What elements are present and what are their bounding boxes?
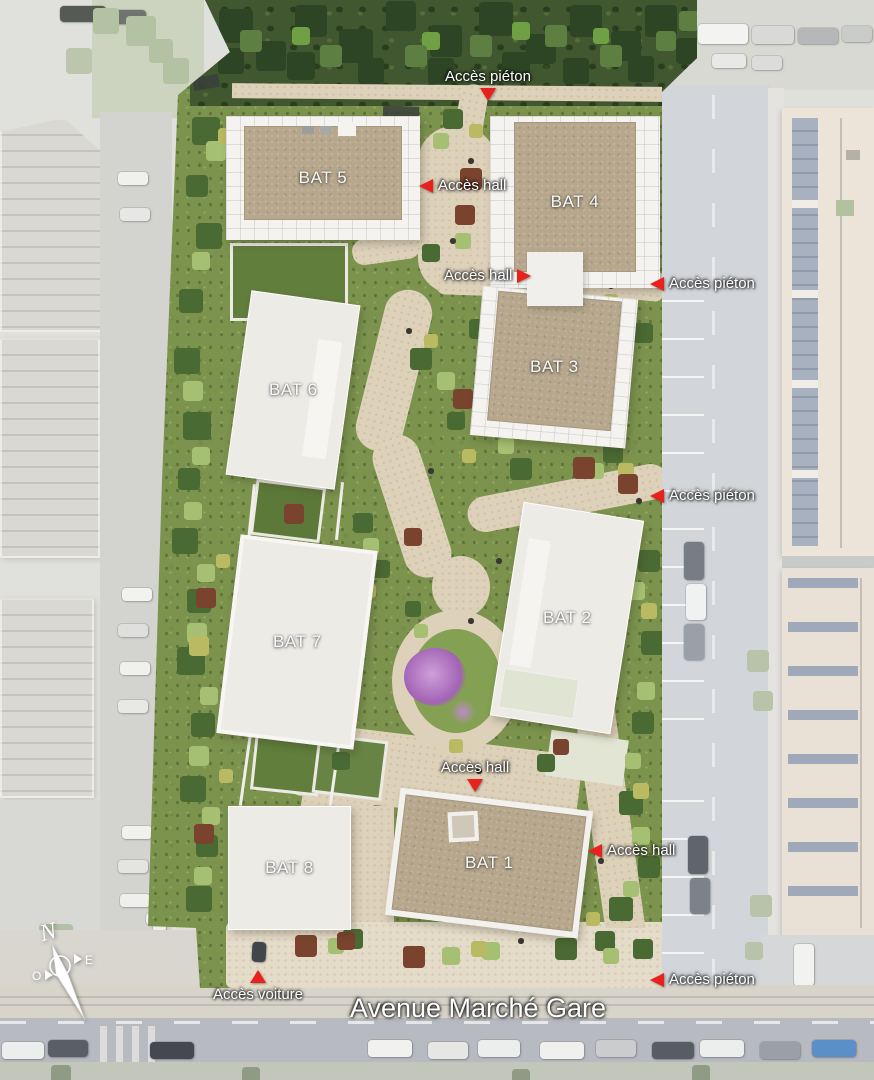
building-bat-8[interactable]: BAT 8 xyxy=(228,806,351,930)
parked-van xyxy=(794,944,814,986)
access-marker-pieton-sud-est: Accès piéton xyxy=(650,971,755,988)
building-label: BAT 7 xyxy=(221,539,373,745)
roof-detail xyxy=(338,122,356,136)
arrow-down-icon xyxy=(467,779,483,792)
compass-east-tick xyxy=(74,954,82,964)
roof xyxy=(514,122,636,272)
roof-line xyxy=(860,578,862,928)
parked-car xyxy=(118,700,148,713)
parked-car xyxy=(690,878,710,914)
compass-north-arrow: N E O xyxy=(12,916,112,1036)
parked-car xyxy=(118,624,148,637)
building-label: BAT 8 xyxy=(229,807,350,929)
parked-car xyxy=(122,588,152,601)
access-label: Accès hall xyxy=(441,759,509,776)
access-label: Accès piéton xyxy=(445,68,531,85)
verge-bottom xyxy=(0,1062,874,1080)
site-plan: BAT 5 BAT 4 BAT 3 BAT 6 BAT 7 BAT 2 BAT … xyxy=(0,0,874,1080)
parked-car xyxy=(48,1040,88,1057)
building-bat-3[interactable]: BAT 3 xyxy=(470,285,638,448)
access-label: Accès piéton xyxy=(669,971,755,988)
parked-car xyxy=(684,624,704,660)
courtyard-green xyxy=(253,482,323,539)
parked-car xyxy=(150,1042,194,1059)
arrow-left-icon xyxy=(650,489,664,503)
arrow-down-icon xyxy=(480,88,496,101)
arrow-left-icon xyxy=(650,277,664,291)
compass-north-label: N xyxy=(36,917,61,947)
access-label: Accès piéton xyxy=(669,487,755,504)
parked-car xyxy=(688,836,708,874)
access-label: Accès hall xyxy=(438,177,506,194)
parked-car xyxy=(760,1042,800,1059)
access-marker-hall-bat4: Accès hall xyxy=(419,177,506,194)
solar-panels xyxy=(788,578,858,928)
parked-car xyxy=(540,1042,584,1059)
parked-truck xyxy=(112,10,146,24)
parked-car xyxy=(652,1042,694,1059)
warehouse-roof xyxy=(0,118,106,332)
parked-car xyxy=(798,28,838,44)
access-marker-hall-bat1-est: Accès hall xyxy=(588,842,675,859)
parked-car xyxy=(752,56,782,70)
access-marker-hall-central: Accès hall xyxy=(444,267,531,284)
warehouse-roof xyxy=(0,338,100,558)
access-label: Accès hall xyxy=(444,267,512,284)
footpath xyxy=(432,556,490,618)
access-marker-voiture: Accès voiture xyxy=(202,970,314,1003)
flowering-tree-purple xyxy=(404,648,466,706)
roof-detail xyxy=(320,126,332,134)
vegetation-scatter xyxy=(0,0,2,2)
compass-needle xyxy=(52,944,85,1020)
parked-car xyxy=(118,172,148,185)
access-label: Accès piéton xyxy=(669,275,755,292)
arrow-right-icon xyxy=(517,269,531,283)
roof-detail xyxy=(509,538,551,668)
parked-car xyxy=(428,1042,468,1059)
parked-car xyxy=(120,208,150,221)
parked-van xyxy=(752,26,794,44)
parked-car xyxy=(712,54,746,68)
parked-car xyxy=(2,1042,44,1059)
arrow-left-icon xyxy=(588,844,602,858)
roof xyxy=(392,794,587,931)
parked-car xyxy=(686,584,706,620)
roof xyxy=(244,126,402,220)
roof-gap xyxy=(782,556,874,568)
roof-equipment xyxy=(846,150,860,160)
street-name-label: Avenue Marché Gare xyxy=(328,993,628,1024)
access-label: Accès voiture xyxy=(213,986,303,1003)
roof-terrace xyxy=(498,668,579,719)
parked-car xyxy=(812,1040,856,1057)
parked-car xyxy=(120,894,150,907)
access-marker-hall-bat1-nord: Accès hall xyxy=(418,759,532,792)
access-label: Accès hall xyxy=(607,842,675,859)
arrow-left-icon xyxy=(650,973,664,987)
arrow-left-icon xyxy=(419,179,433,193)
roof xyxy=(487,291,622,431)
compass-east-label: E xyxy=(85,953,93,967)
parked-car xyxy=(251,942,266,963)
building-bat-5[interactable]: BAT 5 xyxy=(226,116,420,240)
roof-detail xyxy=(302,126,314,134)
parked-car xyxy=(122,826,152,839)
parked-car xyxy=(684,542,704,580)
roof-detail xyxy=(302,339,342,459)
parked-car xyxy=(842,26,872,42)
access-marker-pieton-nord: Accès piéton xyxy=(428,68,548,101)
access-marker-pieton-est-haut: Accès piéton xyxy=(650,275,755,292)
roof-line xyxy=(840,118,842,548)
access-marker-pieton-est-milieu: Accès piéton xyxy=(650,487,755,504)
parked-car xyxy=(368,1040,412,1057)
parked-car xyxy=(596,1040,636,1057)
parked-car xyxy=(120,662,150,675)
parked-car xyxy=(118,860,148,873)
parked-car xyxy=(478,1040,520,1057)
hall-structure xyxy=(527,252,583,306)
building-bat-1[interactable]: BAT 1 xyxy=(385,788,593,939)
solar-panels xyxy=(792,118,818,546)
parked-car xyxy=(700,1040,744,1057)
arrow-up-icon xyxy=(250,970,266,983)
roof-skylight xyxy=(447,811,479,843)
lane-marking xyxy=(712,95,715,985)
flowering-tree-purple xyxy=(450,700,476,724)
parked-truck xyxy=(60,6,106,22)
roof-terrace-green xyxy=(836,200,854,216)
warehouse-roof xyxy=(0,598,94,798)
compass-west-label: O xyxy=(32,969,41,983)
parked-van xyxy=(698,24,748,44)
building-bat-7[interactable]: BAT 7 xyxy=(216,534,377,749)
